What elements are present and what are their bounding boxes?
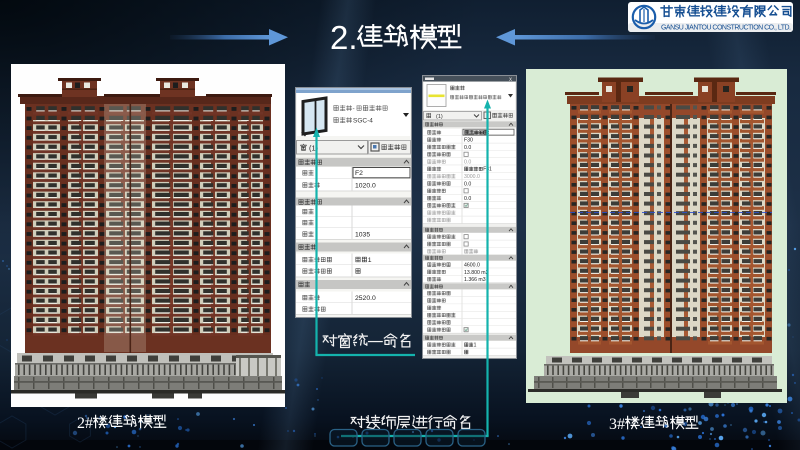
svg-text:1.366 m3: 1.366 m3 (464, 277, 486, 283)
svg-text:0.0: 0.0 (464, 181, 471, 187)
svg-text:-: - (353, 105, 355, 112)
svg-text:1: 1 (474, 342, 477, 348)
svg-text:2.: 2. (330, 19, 358, 56)
svg-text:3#: 3# (609, 416, 625, 433)
svg-text:SGC-4: SGC-4 (353, 118, 373, 125)
svg-text:F2: F2 (355, 170, 363, 177)
svg-text:0.0: 0.0 (464, 196, 471, 202)
svg-text:1035: 1035 (355, 231, 370, 238)
svg-text:4600.0: 4600.0 (464, 263, 480, 269)
svg-text:GANSU JIANTOU CONSTRUCTION CO.: GANSU JIANTOU CONSTRUCTION CO., LTD. (661, 25, 791, 32)
svg-text:0.0: 0.0 (464, 160, 471, 166)
svg-text:1020.0: 1020.0 (355, 182, 376, 189)
svg-text:1: 1 (368, 257, 372, 264)
svg-text:(1): (1) (436, 114, 443, 120)
svg-text:0.0: 0.0 (464, 145, 471, 151)
svg-text:F30: F30 (464, 138, 473, 144)
svg-text:13.800 m2: 13.800 m2 (464, 270, 489, 276)
svg-text:2#: 2# (77, 415, 93, 432)
svg-text:2520.0: 2520.0 (355, 295, 376, 302)
svg-text:3000.0: 3000.0 (464, 174, 480, 180)
